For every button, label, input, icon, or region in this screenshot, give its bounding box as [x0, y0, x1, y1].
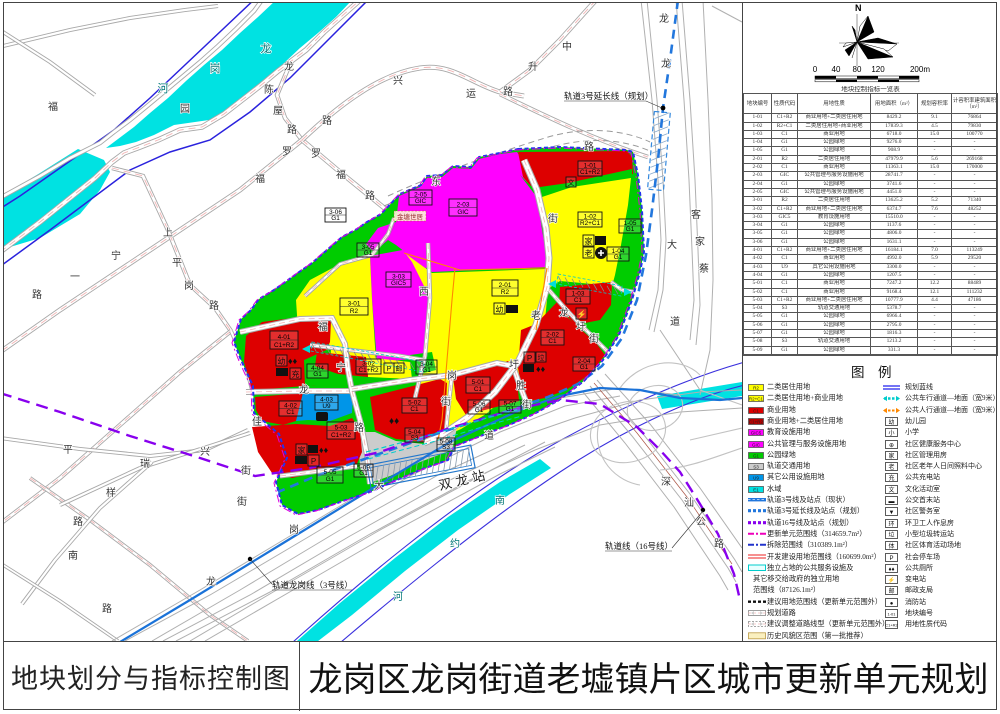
svg-text:0: 0 [813, 65, 818, 74]
svg-text:G1: G1 [313, 371, 322, 378]
svg-text:文: 文 [568, 178, 575, 187]
svg-text:轨道线（16号线）: 轨道线（16号线） [605, 541, 673, 551]
svg-text:●: ● [890, 601, 894, 607]
svg-text:⚡: ⚡ [577, 309, 587, 319]
svg-text:U9: U9 [322, 403, 331, 410]
svg-text:一: 一 [70, 272, 80, 283]
svg-text:G1: G1 [580, 364, 589, 371]
svg-text:罗: 罗 [311, 148, 321, 160]
svg-text:200m: 200m [910, 65, 930, 74]
svg-text:充: 充 [888, 474, 894, 482]
svg-text:邮: 邮 [396, 364, 403, 373]
svg-text:2-01: 2-01 [499, 282, 512, 289]
svg-text:福: 福 [336, 168, 346, 181]
svg-text:C1+R2: C1+R2 [358, 367, 379, 374]
svg-text:街: 街 [237, 495, 247, 508]
svg-text:样: 样 [106, 486, 116, 499]
svg-text:汕: 汕 [684, 497, 694, 509]
svg-text:路: 路 [503, 85, 513, 98]
svg-text:C1: C1 [548, 338, 557, 345]
svg-text:中: 中 [562, 40, 572, 53]
svg-text:路: 路 [209, 299, 219, 312]
svg-text:5-03: 5-03 [335, 424, 348, 431]
svg-text:♦♦: ♦♦ [888, 567, 894, 573]
svg-text:G1: G1 [753, 453, 760, 458]
svg-text:C1+R2: C1+R2 [749, 419, 764, 424]
svg-text:G1: G1 [626, 226, 635, 233]
svg-text:R2+C1: R2+C1 [580, 220, 601, 227]
svg-text:幼: 幼 [278, 356, 286, 366]
svg-text:环: 环 [888, 521, 894, 528]
svg-text:G1: G1 [359, 470, 368, 477]
svg-text:G1: G1 [475, 407, 484, 414]
svg-text:龙: 龙 [661, 57, 671, 70]
svg-text:P: P [387, 366, 392, 373]
svg-text:垃: 垃 [538, 353, 545, 362]
svg-text:家: 家 [695, 235, 705, 248]
svg-text:平: 平 [63, 445, 73, 456]
svg-text:岗: 岗 [289, 524, 299, 536]
svg-text:老: 老 [888, 463, 894, 471]
svg-text:岗: 岗 [210, 62, 221, 75]
svg-text:S3: S3 [753, 465, 759, 470]
svg-text:40: 40 [832, 65, 841, 74]
svg-text:GIC5: GIC5 [391, 280, 406, 287]
svg-text:U9: U9 [753, 476, 759, 481]
svg-text:家: 家 [585, 236, 593, 246]
svg-text:福: 福 [318, 320, 328, 333]
svg-text:P: P [311, 457, 316, 466]
svg-text:轨道3号延长线（规划）: 轨道3号延长线（规划） [564, 91, 653, 101]
svg-text:园: 园 [180, 103, 190, 115]
svg-text:深: 深 [661, 476, 671, 488]
svg-text:⚡: ⚡ [888, 576, 895, 584]
svg-text:福: 福 [255, 172, 265, 185]
svg-text:龙: 龙 [299, 383, 309, 396]
svg-text:西: 西 [419, 287, 429, 298]
svg-text:路: 路 [714, 537, 724, 550]
svg-text:体: 体 [888, 542, 894, 550]
svg-text:C1+R2: C1+R2 [580, 169, 601, 176]
svg-text:龙: 龙 [261, 42, 272, 55]
svg-text:C1: C1 [410, 406, 419, 413]
svg-text:佳: 佳 [252, 415, 262, 428]
svg-text:G1: G1 [364, 250, 373, 257]
svg-text:福: 福 [48, 100, 58, 113]
svg-text:龙: 龙 [284, 60, 294, 73]
svg-text:♦♦: ♦♦ [389, 416, 399, 427]
svg-text:幼: 幼 [888, 418, 894, 426]
svg-text:⊕: ⊕ [889, 443, 894, 449]
svg-text:兴: 兴 [393, 75, 403, 87]
svg-text:路: 路 [354, 421, 364, 434]
svg-text:公: 公 [696, 517, 706, 528]
svg-text:C1: C1 [574, 297, 583, 304]
svg-text:GIC: GIC [415, 198, 427, 205]
svg-text:2-03: 2-03 [457, 201, 470, 208]
svg-text:R2: R2 [501, 289, 510, 296]
svg-text:C1: C1 [753, 408, 759, 413]
svg-text:▼: ▼ [889, 510, 895, 516]
svg-text:邮: 邮 [888, 587, 894, 595]
svg-text:路: 路 [73, 515, 83, 528]
svg-text:GIC: GIC [752, 442, 761, 447]
svg-text:圩: 圩 [576, 320, 586, 333]
svg-text:小: 小 [888, 429, 894, 437]
svg-text:路: 路 [365, 189, 375, 202]
svg-text:大: 大 [374, 479, 384, 492]
svg-text:C1: C1 [286, 409, 295, 416]
svg-text:升: 升 [528, 61, 538, 73]
svg-text:街: 街 [441, 395, 451, 408]
svg-text:♦♦: ♦♦ [319, 445, 329, 455]
svg-text:G1: G1 [326, 476, 335, 483]
svg-text:宁: 宁 [336, 361, 346, 374]
svg-text:家: 家 [298, 445, 306, 455]
svg-text:道: 道 [670, 315, 680, 328]
svg-text:C1+R2: C1+R2 [274, 342, 295, 349]
svg-text:充: 充 [292, 369, 300, 379]
svg-text:龙: 龙 [206, 575, 216, 588]
svg-text:龙: 龙 [559, 306, 569, 319]
svg-text:胜: 胜 [516, 380, 526, 392]
svg-text:岗: 岗 [184, 280, 194, 292]
svg-text:运: 运 [466, 88, 476, 100]
svg-text:圩: 圩 [509, 358, 519, 371]
svg-text:G1: G1 [331, 215, 340, 222]
svg-text:S3: S3 [442, 444, 450, 451]
svg-text:东: 东 [431, 175, 441, 188]
svg-text:街: 街 [548, 212, 558, 225]
svg-text:垃: 垃 [888, 531, 894, 539]
svg-text:南: 南 [68, 549, 78, 562]
svg-text:路: 路 [32, 288, 42, 301]
svg-text:龙: 龙 [659, 12, 669, 25]
svg-text:♦♦: ♦♦ [536, 364, 546, 374]
svg-text:路: 路 [102, 602, 112, 615]
svg-text:上: 上 [163, 227, 173, 239]
svg-text:罗: 罗 [282, 146, 292, 158]
svg-text:G1: G1 [614, 254, 623, 261]
svg-text:老: 老 [531, 309, 541, 322]
svg-text:G1: G1 [506, 406, 515, 413]
svg-text:岗: 岗 [447, 370, 457, 382]
svg-text:S3: S3 [411, 435, 419, 442]
svg-text:5-05: 5-05 [324, 469, 337, 476]
svg-text:3-01: 3-01 [348, 300, 361, 307]
svg-text:蔡: 蔡 [699, 262, 709, 275]
svg-text:约: 约 [450, 537, 460, 550]
svg-text:瑞: 瑞 [140, 458, 150, 470]
svg-text:C1+R2: C1+R2 [331, 432, 352, 439]
svg-text:4-01: 4-01 [278, 334, 291, 341]
svg-text:P: P [527, 354, 532, 363]
svg-text:GIC5: GIC5 [751, 431, 762, 436]
svg-text:客: 客 [691, 208, 701, 221]
svg-text:街: 街 [241, 464, 251, 477]
svg-text:路: 路 [584, 140, 594, 153]
svg-text:河: 河 [393, 591, 403, 603]
svg-text:轨道龙岗线（3号线）: 轨道龙岗线（3号线） [272, 580, 353, 590]
svg-text:道: 道 [484, 429, 494, 442]
svg-text:GIC: GIC [457, 209, 469, 216]
svg-text:E1: E1 [753, 487, 759, 492]
svg-text:路: 路 [287, 123, 297, 136]
svg-text:N: N [855, 3, 862, 13]
svg-text:80: 80 [853, 65, 862, 74]
svg-text:河: 河 [158, 82, 169, 95]
svg-text:老: 老 [585, 248, 593, 258]
svg-text:1-01: 1-01 [887, 612, 896, 617]
svg-text:宁: 宁 [111, 249, 121, 262]
svg-text:120: 120 [871, 65, 885, 74]
svg-text:R2: R2 [350, 308, 359, 315]
svg-text:金塘世居: 金塘世居 [397, 212, 424, 221]
svg-text:5-01: 5-01 [472, 379, 485, 386]
svg-text:C1+R2: C1+R2 [885, 623, 898, 628]
svg-text:G1: G1 [422, 367, 431, 374]
svg-text:屋: 屋 [273, 105, 283, 117]
svg-text:文: 文 [888, 486, 894, 494]
svg-text:♦♦: ♦♦ [288, 356, 298, 366]
svg-text:家: 家 [888, 452, 894, 460]
svg-text:陈: 陈 [264, 83, 274, 96]
svg-text:街: 街 [522, 398, 532, 411]
svg-text:▬: ▬ [889, 499, 895, 505]
svg-text:平: 平 [172, 258, 182, 269]
svg-text:路: 路 [322, 114, 332, 127]
svg-text:南: 南 [495, 494, 505, 507]
svg-text:兴: 兴 [200, 446, 210, 458]
svg-text:大: 大 [667, 238, 677, 251]
svg-text:R2+C1: R2+C1 [749, 397, 764, 402]
svg-text:幼: 幼 [496, 304, 504, 314]
svg-text:P: P [889, 556, 893, 562]
svg-text:街: 街 [589, 332, 599, 345]
svg-text:C1: C1 [474, 386, 483, 393]
svg-text:R2: R2 [753, 386, 759, 391]
